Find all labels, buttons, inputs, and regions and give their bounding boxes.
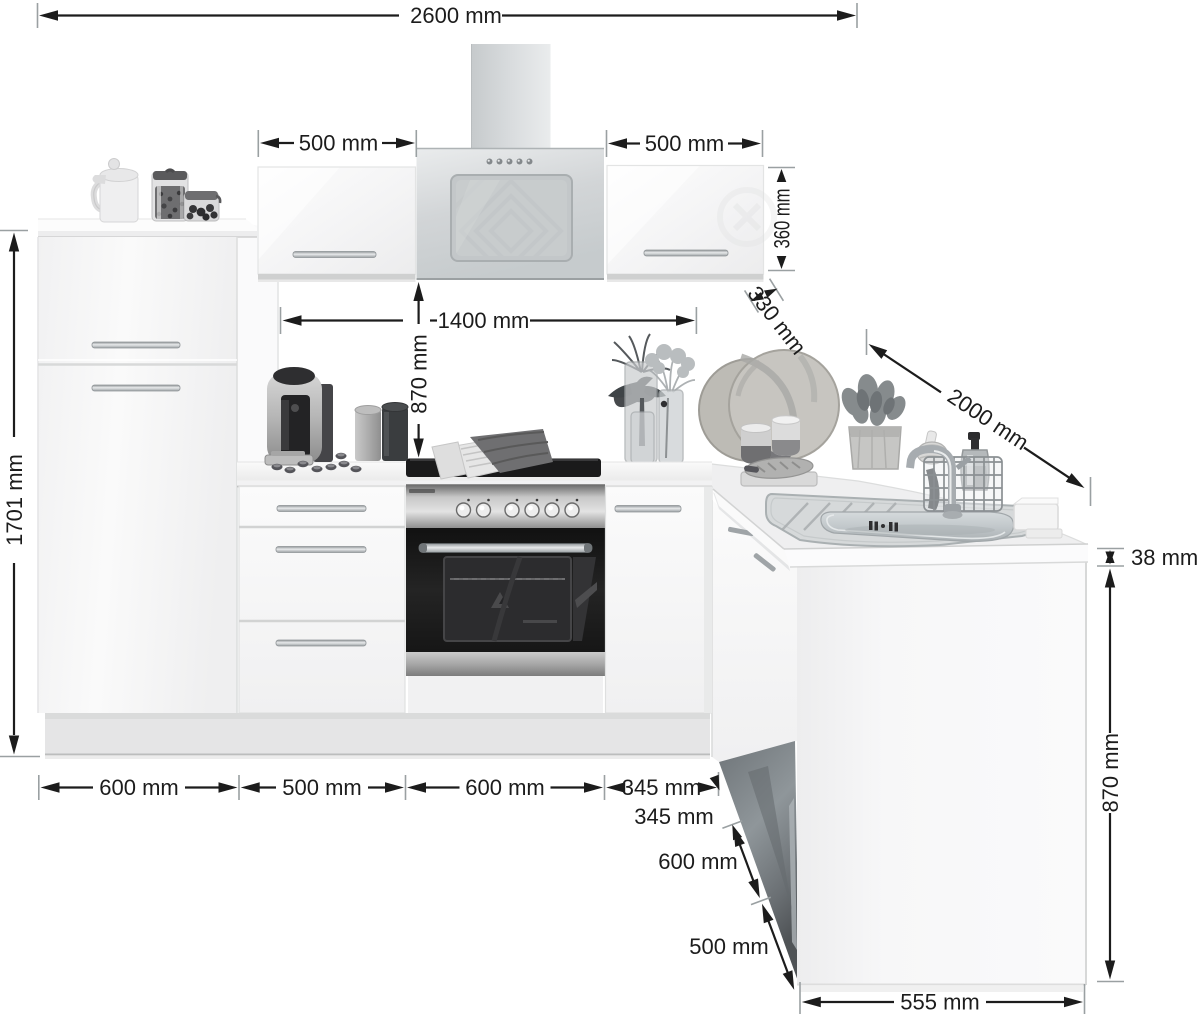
svg-text:345 mm: 345 mm — [634, 804, 713, 829]
svg-text:870 mm: 870 mm — [1098, 733, 1123, 812]
svg-text:1701 mm: 1701 mm — [2, 454, 27, 546]
svg-text:500 mm: 500 mm — [282, 775, 361, 800]
svg-text:870 mm: 870 mm — [406, 334, 431, 413]
svg-text:360 mm: 360 mm — [770, 189, 795, 249]
svg-text:600 mm: 600 mm — [99, 775, 178, 800]
svg-text:345 mm: 345 mm — [622, 775, 701, 800]
svg-text:555 mm: 555 mm — [900, 990, 979, 1015]
svg-text:600 mm: 600 mm — [465, 775, 544, 800]
svg-text:38 mm: 38 mm — [1131, 545, 1198, 570]
svg-text:500 mm: 500 mm — [689, 934, 768, 959]
svg-text:500 mm: 500 mm — [645, 131, 724, 156]
svg-text:2600 mm: 2600 mm — [410, 3, 502, 28]
svg-text:600 mm: 600 mm — [658, 849, 737, 874]
svg-text:1400 mm: 1400 mm — [438, 308, 530, 333]
svg-text:500 mm: 500 mm — [299, 131, 378, 156]
